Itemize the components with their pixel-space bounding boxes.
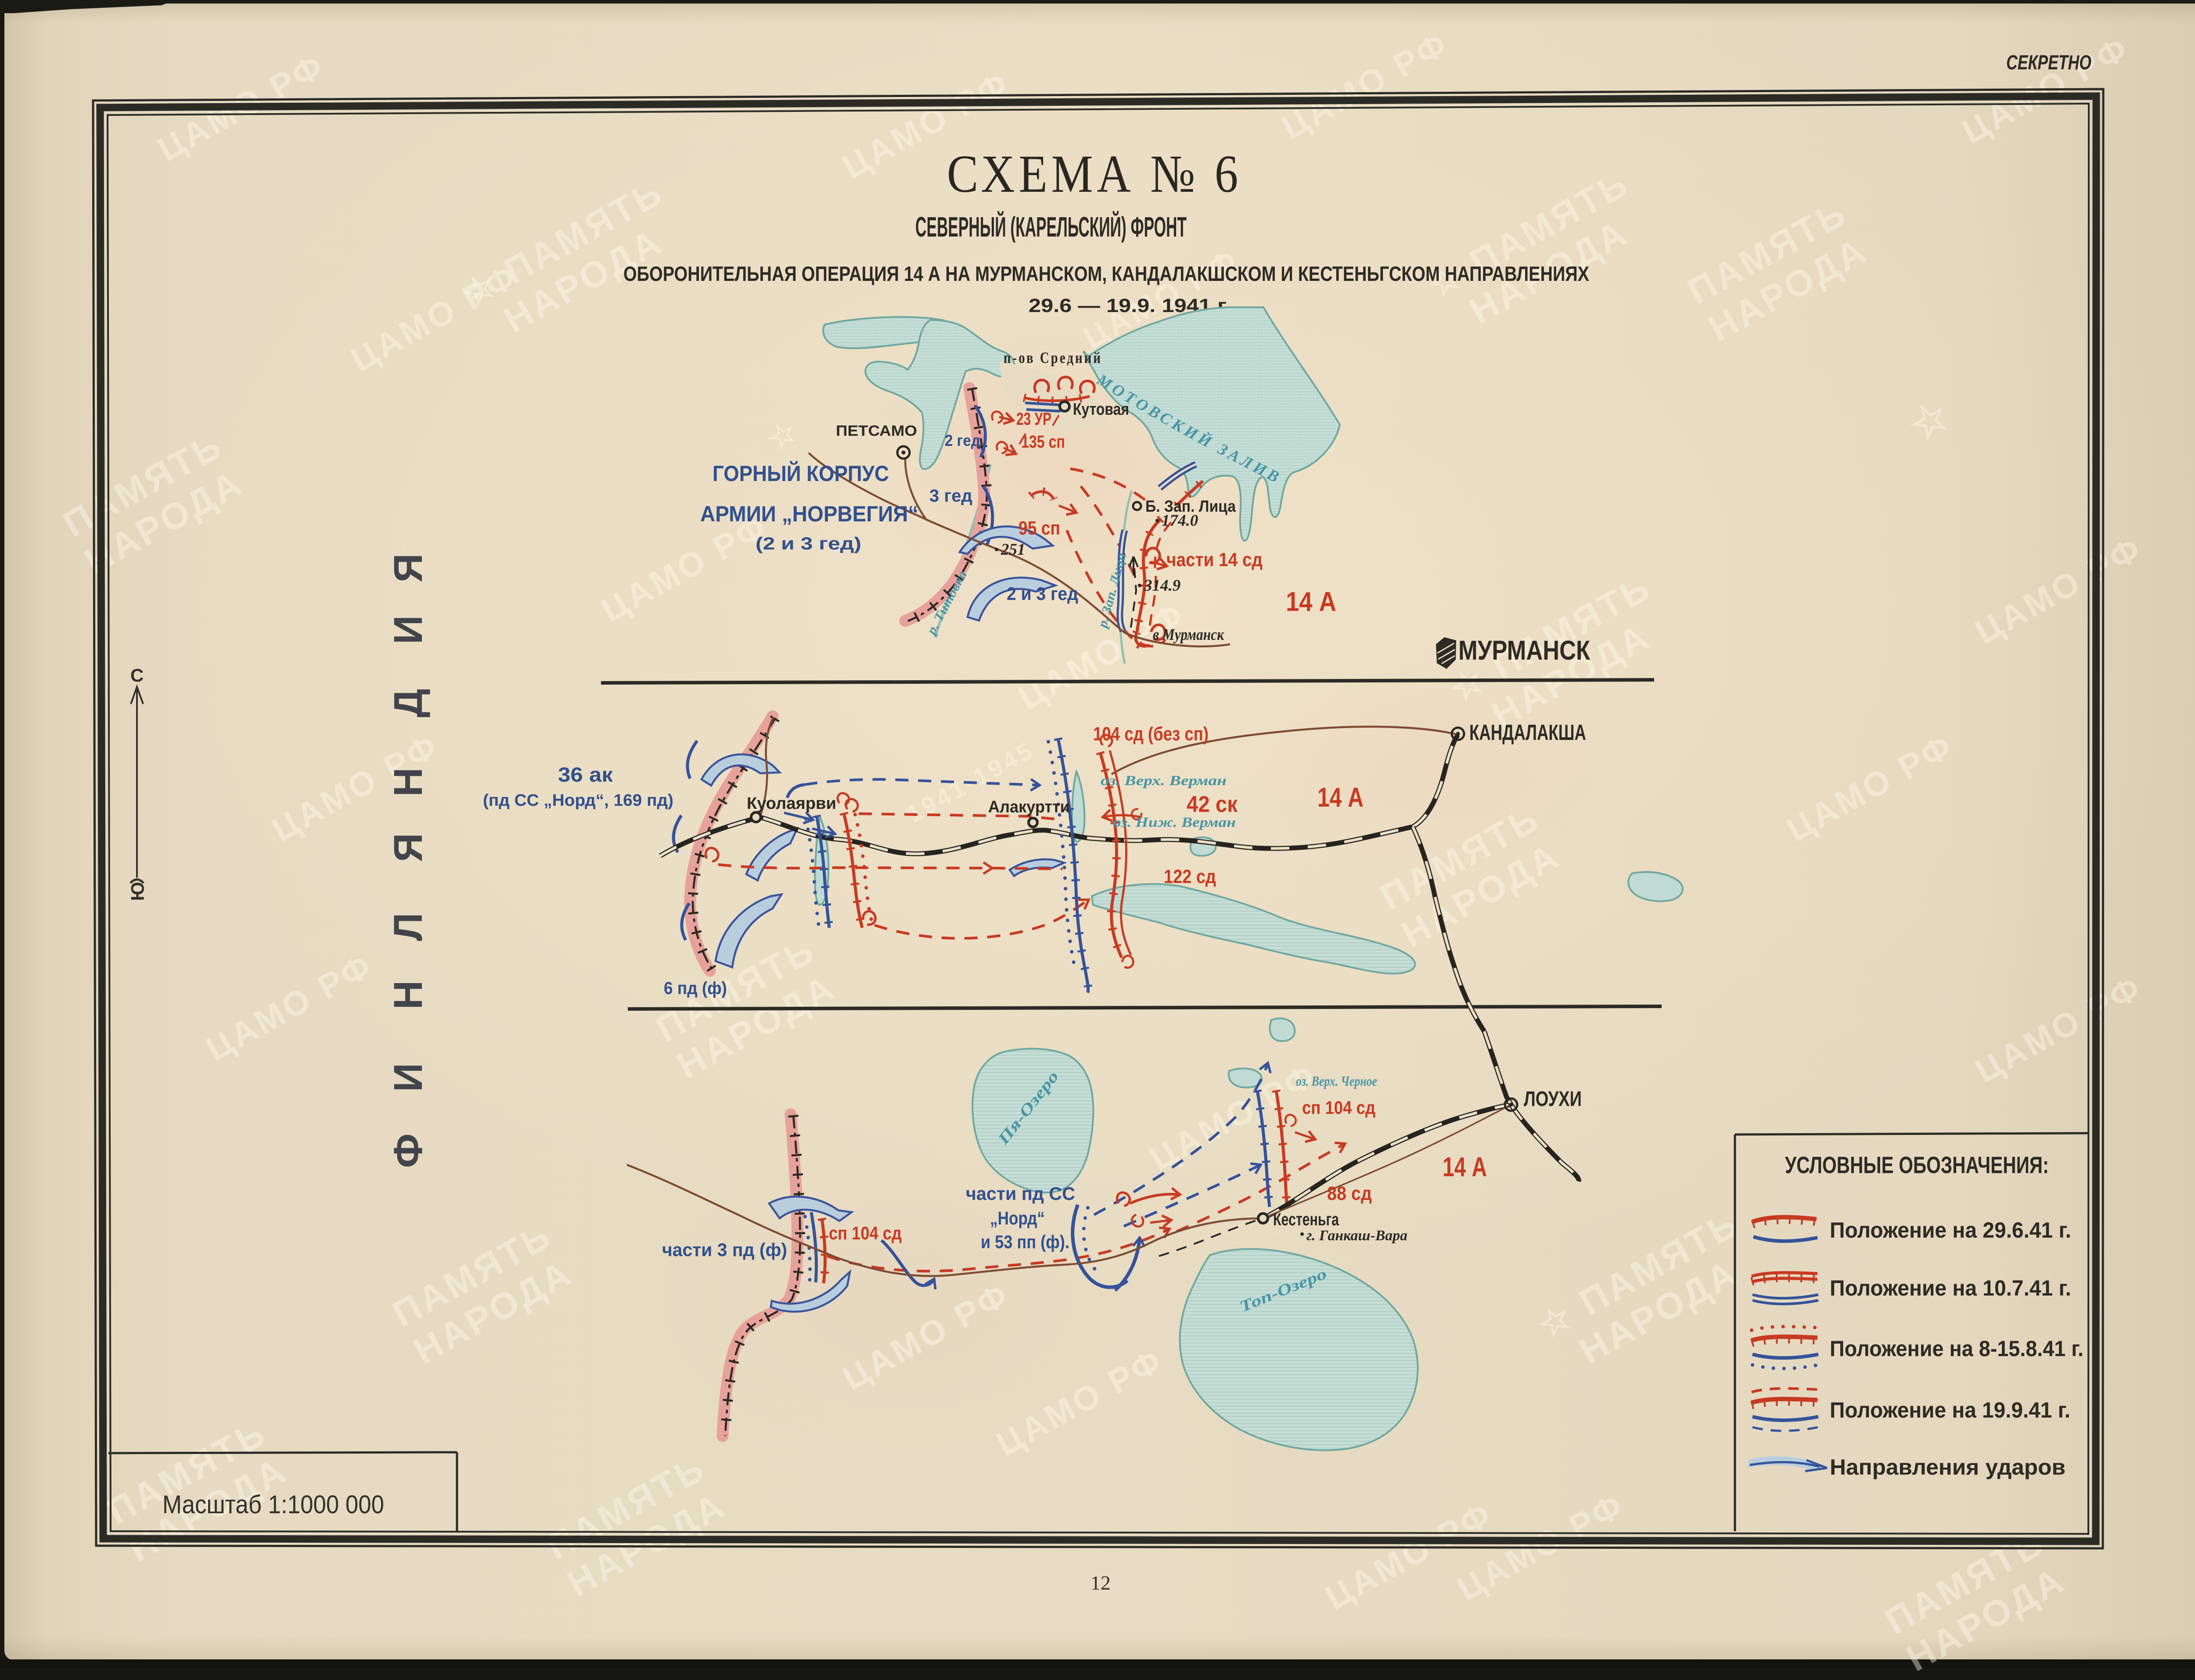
svg-text:Ф: Ф [386, 1134, 431, 1168]
svg-text:ГОРНЫЙ КОРПУС: ГОРНЫЙ КОРПУС [712, 461, 889, 486]
svg-text:ПЕТСАМО: ПЕТСАМО [836, 423, 917, 439]
svg-text:88 сд: 88 сд [1327, 1183, 1372, 1204]
svg-text:Направления ударов: Направления ударов [1830, 1455, 2065, 1479]
svg-text:95 сп: 95 сп [1018, 517, 1060, 539]
svg-text:3 гед: 3 гед [929, 486, 972, 506]
svg-text:Н: Н [386, 768, 431, 797]
svg-text:„Норд“: „Норд“ [990, 1208, 1045, 1228]
svg-text:6 пд (ф): 6 пд (ф) [664, 979, 727, 998]
svg-text:СХЕМА № 6: СХЕМА № 6 [947, 144, 1242, 204]
svg-text:23 УР: 23 УР [1016, 409, 1051, 429]
svg-text:оз. Ниж. Верман: оз. Ниж. Верман [1113, 814, 1236, 830]
svg-text:104 сд (без сп): 104 сд (без сп) [1093, 723, 1209, 745]
svg-text:ОБОРОНИТЕЛЬНАЯ ОПЕРАЦИЯ 14 А Н: ОБОРОНИТЕЛЬНАЯ ОПЕРАЦИЯ 14 А НА МУРМАНСК… [623, 262, 1589, 285]
svg-text:14 А: 14 А [1286, 587, 1336, 617]
svg-text:251: 251 [1000, 541, 1026, 559]
svg-text:14 А: 14 А [1317, 783, 1364, 813]
svg-text:АРМИИ „НОРВЕГИЯ“: АРМИИ „НОРВЕГИЯ“ [700, 502, 918, 526]
svg-text:174.0: 174.0 [1162, 512, 1198, 530]
svg-text:Положение на 29.6.41 г.: Положение на 29.6.41 г. [1830, 1218, 2071, 1242]
svg-text:Алакуртти: Алакуртти [988, 798, 1070, 816]
svg-text:и 53 пп (ф).: и 53 пп (ф). [981, 1231, 1069, 1252]
svg-text:Куолаярви: Куолаярви [747, 794, 836, 813]
svg-text:оз. Верх. Черное: оз. Верх. Черное [1296, 1073, 1377, 1089]
svg-text:Ю: Ю [127, 882, 148, 901]
svg-text:И: И [386, 615, 431, 644]
svg-text:314.9: 314.9 [1144, 577, 1180, 595]
svg-text:сп 104 сд: сп 104 сд [1302, 1097, 1375, 1118]
svg-text:СЕВЕРНЫЙ (КАРЕЛЬСКИЙ) ФРОНТ: СЕВЕРНЫЙ (КАРЕЛЬСКИЙ) ФРОНТ [915, 211, 1187, 243]
svg-text:12: 12 [1090, 1572, 1111, 1594]
svg-text:СЕКРЕТНО: СЕКРЕТНО [2006, 51, 2091, 74]
svg-text:части пд СС: части пд СС [966, 1183, 1075, 1204]
svg-text:ЛОУХИ: ЛОУХИ [1524, 1088, 1582, 1111]
svg-text:(2 и 3 гед): (2 и 3 гед) [756, 534, 861, 553]
svg-text:(пд СС „Норд“, 169 пд): (пд СС „Норд“, 169 пд) [483, 791, 673, 810]
svg-text:части 14 сд: части 14 сд [1166, 549, 1263, 571]
svg-text:42 ск: 42 ск [1187, 792, 1238, 817]
svg-text:Я: Я [386, 833, 431, 862]
svg-text:2 и 3 гед: 2 и 3 гед [1007, 583, 1078, 604]
svg-text:135 сп: 135 сп [1021, 432, 1065, 452]
svg-text:оз. Верх. Верман: оз. Верх. Верман [1101, 772, 1227, 788]
svg-text:Кестеньга: Кестеньга [1273, 1210, 1339, 1229]
svg-text:КАНДАЛАКША: КАНДАЛАКША [1469, 720, 1586, 745]
svg-text:Положение на 19.9.41 г.: Положение на 19.9.41 г. [1830, 1398, 2070, 1422]
svg-text:УСЛОВНЫЕ ОБОЗНАЧЕНИЯ:: УСЛОВНЫЕ ОБОЗНАЧЕНИЯ: [1785, 1152, 2049, 1178]
svg-text:г. Ганкаш-Вара: г. Ганкаш-Вара [1306, 1228, 1407, 1244]
svg-text:36 ак: 36 ак [558, 763, 613, 786]
svg-text:Масштаб 1:1000 000: Масштаб 1:1000 000 [162, 1490, 384, 1519]
svg-text:МУРМАНСК: МУРМАНСК [1458, 635, 1590, 666]
svg-text:Кутовая: Кутовая [1073, 400, 1129, 419]
svg-text:Положение на 10.7.41 г.: Положение на 10.7.41 г. [1830, 1276, 2071, 1300]
svg-text:Я: Я [386, 553, 431, 582]
svg-text:Л: Л [386, 913, 431, 941]
svg-text:Н: Н [386, 980, 431, 1009]
svg-text:122 сд: 122 сд [1164, 866, 1216, 887]
svg-text:И: И [386, 1063, 431, 1092]
svg-text:14 А: 14 А [1443, 1152, 1487, 1182]
svg-text:Д: Д [386, 689, 431, 718]
svg-text:2 гед: 2 гед [945, 431, 980, 449]
svg-text:Положение на 8-15.8.41 г.: Положение на 8-15.8.41 г. [1830, 1336, 2083, 1361]
svg-text:в Мурманск: в Мурманск [1153, 626, 1224, 644]
svg-text:части 3 пд (ф): части 3 пд (ф) [662, 1239, 787, 1260]
svg-text:п-ов Средний: п-ов Средний [1004, 349, 1102, 366]
svg-text:сп 104 сд: сп 104 сд [829, 1223, 902, 1243]
svg-text:С: С [130, 665, 144, 686]
